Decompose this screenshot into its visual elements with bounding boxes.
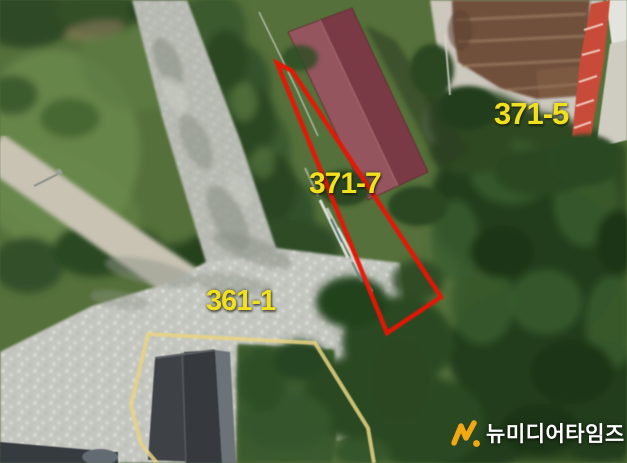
aerial-scene <box>0 0 627 463</box>
watermark: 뉴미디어타임즈 <box>450 418 625 450</box>
watermark-text: 뉴미디어타임즈 <box>486 424 625 445</box>
newmedia-n-icon <box>450 419 480 449</box>
parcel-label-371-5: 371-5 <box>494 98 568 129</box>
parcel-label-371-7: 371-7 <box>309 169 381 199</box>
dark-roof-building <box>148 350 236 463</box>
parcel-label-361-1: 361-1 <box>206 287 275 316</box>
aerial-photo: 371-5 371-7 361-1 뉴미디어타임즈 <box>0 0 627 463</box>
